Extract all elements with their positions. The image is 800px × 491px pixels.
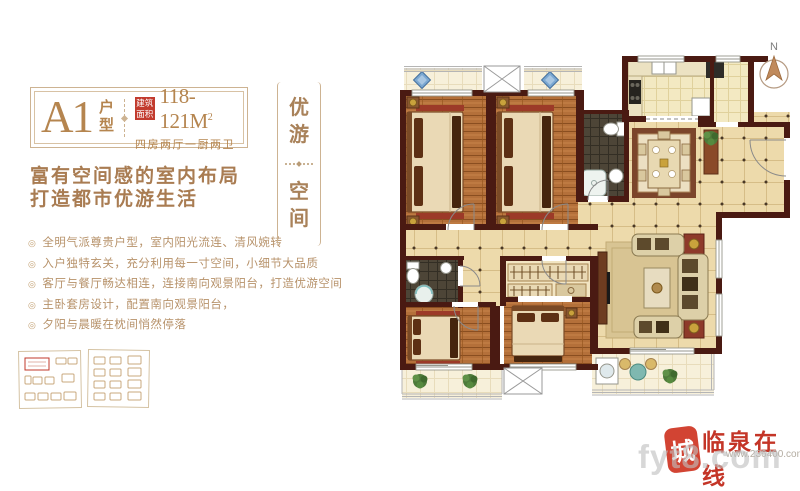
area-value: 118-121M2 — [160, 84, 237, 134]
entry-planter — [704, 130, 719, 174]
feature-item: ◎主卧套房设计，配置南向观景阳台， — [28, 295, 342, 316]
slogan: 富有空间感的室内布局 打造都市优游生活 — [30, 165, 240, 211]
compass-label: N — [770, 41, 778, 53]
vertical-banner: 优游 空间 — [277, 82, 321, 246]
slogan-line-1: 富有空间感的室内布局 — [30, 165, 240, 188]
compass: N — [760, 41, 788, 88]
bullet-icon: ◎ — [28, 238, 36, 248]
bullet-icon: ◎ — [28, 320, 36, 330]
bed-room-a — [407, 97, 464, 227]
keyplan-left — [18, 349, 83, 411]
feature-list: ◎全明气派尊贵户型，室内阳光流连、清风婉转 ◎入户独特玄关，充分利用每一寸空间，… — [28, 233, 342, 336]
bed-room-c — [408, 311, 460, 365]
watermark-overlay: fyt8.com — [638, 438, 782, 476]
floor-plan-drawing: N — [392, 28, 798, 406]
bed-room-b — [497, 97, 554, 227]
feature-item: ◎入户独特玄关，充分利用每一寸空间，小细节大品质 — [28, 254, 342, 275]
banner-ornament — [285, 162, 313, 166]
feature-item: ◎客厅与餐厅畅达相连，连接南向观景阳台，打造优游空间 — [28, 274, 342, 295]
floor-plan: N — [392, 28, 798, 406]
unit-code: A1 — [41, 95, 92, 140]
area-tag: 建筑面积 — [135, 97, 155, 119]
bullet-icon: ◎ — [28, 300, 36, 310]
flyer: A1 户型 建筑面积 118-121M2 四房两厅一厨两卫 富有空间感的室内布局… — [0, 0, 800, 481]
title-plaque: A1 户型 建筑面积 118-121M2 四房两厅一厨两卫 — [30, 87, 248, 148]
banner-word-top: 优游 — [288, 95, 310, 149]
feature-item: ◎夕阳与晨暖在枕间悄然停落 — [28, 315, 342, 336]
layout-description: 四房两厅一厨两卫 — [135, 136, 237, 152]
dining-set — [632, 128, 696, 198]
living-room-set — [598, 234, 708, 338]
bullet-icon: ◎ — [28, 259, 36, 269]
banner-word-bottom: 空间 — [288, 179, 310, 233]
unit-type-label: 户型 — [99, 100, 114, 135]
keyplan-right — [86, 349, 151, 411]
building-keyplans — [18, 349, 151, 411]
closet-racks — [508, 264, 588, 297]
plaque-divider — [124, 99, 125, 137]
bullet-icon: ◎ — [28, 279, 36, 289]
slogan-line-2: 打造都市优游生活 — [30, 188, 240, 211]
